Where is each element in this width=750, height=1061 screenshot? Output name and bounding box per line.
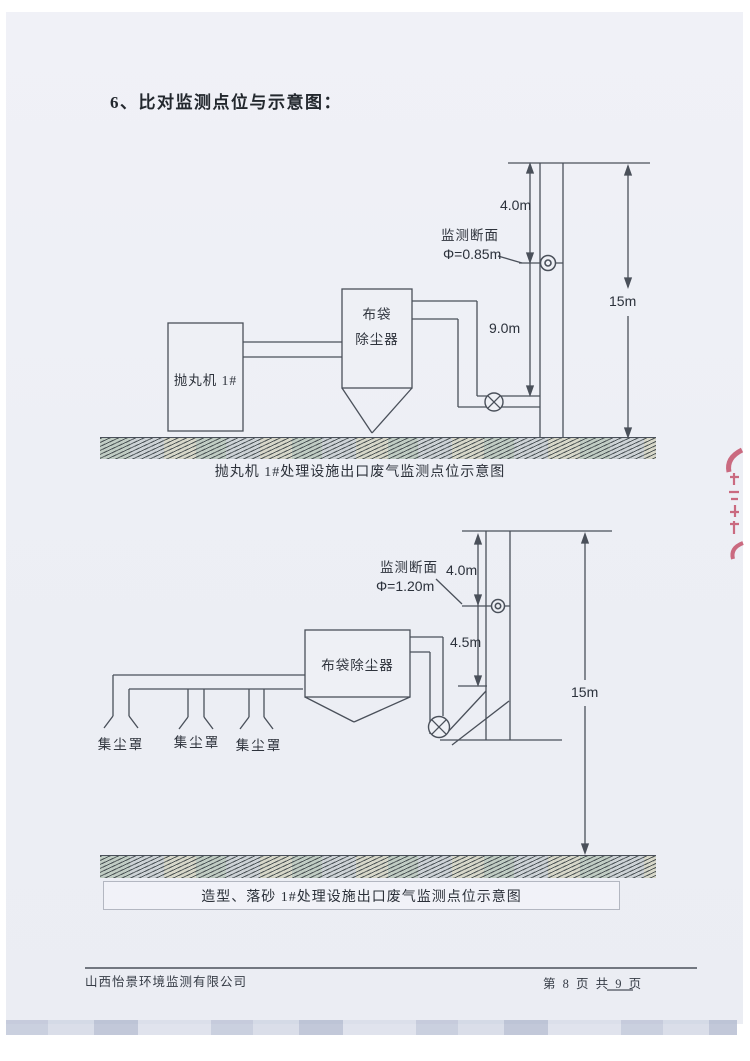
diagram1-machine-label: 抛丸机 1# xyxy=(168,369,243,389)
diagram2-dim-45m-label: 4.5m xyxy=(450,634,481,650)
ground-hatch-diagram2 xyxy=(100,855,656,878)
diagram2-hood3-label: 集尘罩 xyxy=(234,734,284,754)
diagram2-hood2-label: 集尘罩 xyxy=(172,731,222,751)
scan-bottom-edge xyxy=(6,1020,737,1035)
diagram1-caption: 抛丸机 1#处理设施出口废气监测点位示意图 xyxy=(130,461,590,481)
diagram2-stack-height-label: 15m xyxy=(571,684,598,700)
diagram2-caption-box: 造型、落砂 1#处理设施出口废气监测点位示意图 xyxy=(103,881,620,910)
diagram1-monitor-section-label: 监测断面 xyxy=(441,224,499,244)
diagram2-hood1-label: 集尘罩 xyxy=(96,733,146,753)
diagram2-dim-4m-label: 4.0m xyxy=(446,562,477,578)
diagram1-collector-label-line2: 除尘器 xyxy=(342,328,412,348)
diagram2-diameter-label: Φ=1.20m xyxy=(376,578,434,594)
diagram2-monitor-section-label: 监测断面 xyxy=(380,556,438,576)
diagram2-caption: 造型、落砂 1#处理设施出口废气监测点位示意图 xyxy=(201,886,522,906)
diagram1-dim-9m-label: 9.0m xyxy=(489,320,520,336)
ground-hatch-diagram1 xyxy=(100,437,656,459)
footer-page-number: 第 8 页 共 9 页 xyxy=(543,973,643,992)
diagram1-diameter-label: Φ=0.85m xyxy=(443,246,501,262)
scanned-page: 6、比对监测点位与示意图： 造型、落砂 1#处理设施出口废气监测点位示意图 xyxy=(0,0,750,1061)
diagram2-collector-label: 布袋除尘器 xyxy=(305,654,410,674)
diagram1-dim-4m-label: 4.0m xyxy=(500,197,531,213)
page-title: 6、比对监测点位与示意图： xyxy=(110,88,342,113)
footer-company: 山西怡景环境监测有限公司 xyxy=(85,971,247,990)
diagram1-stack-height-label: 15m xyxy=(609,293,636,309)
diagram1-collector-label-line1: 布袋 xyxy=(342,303,412,323)
